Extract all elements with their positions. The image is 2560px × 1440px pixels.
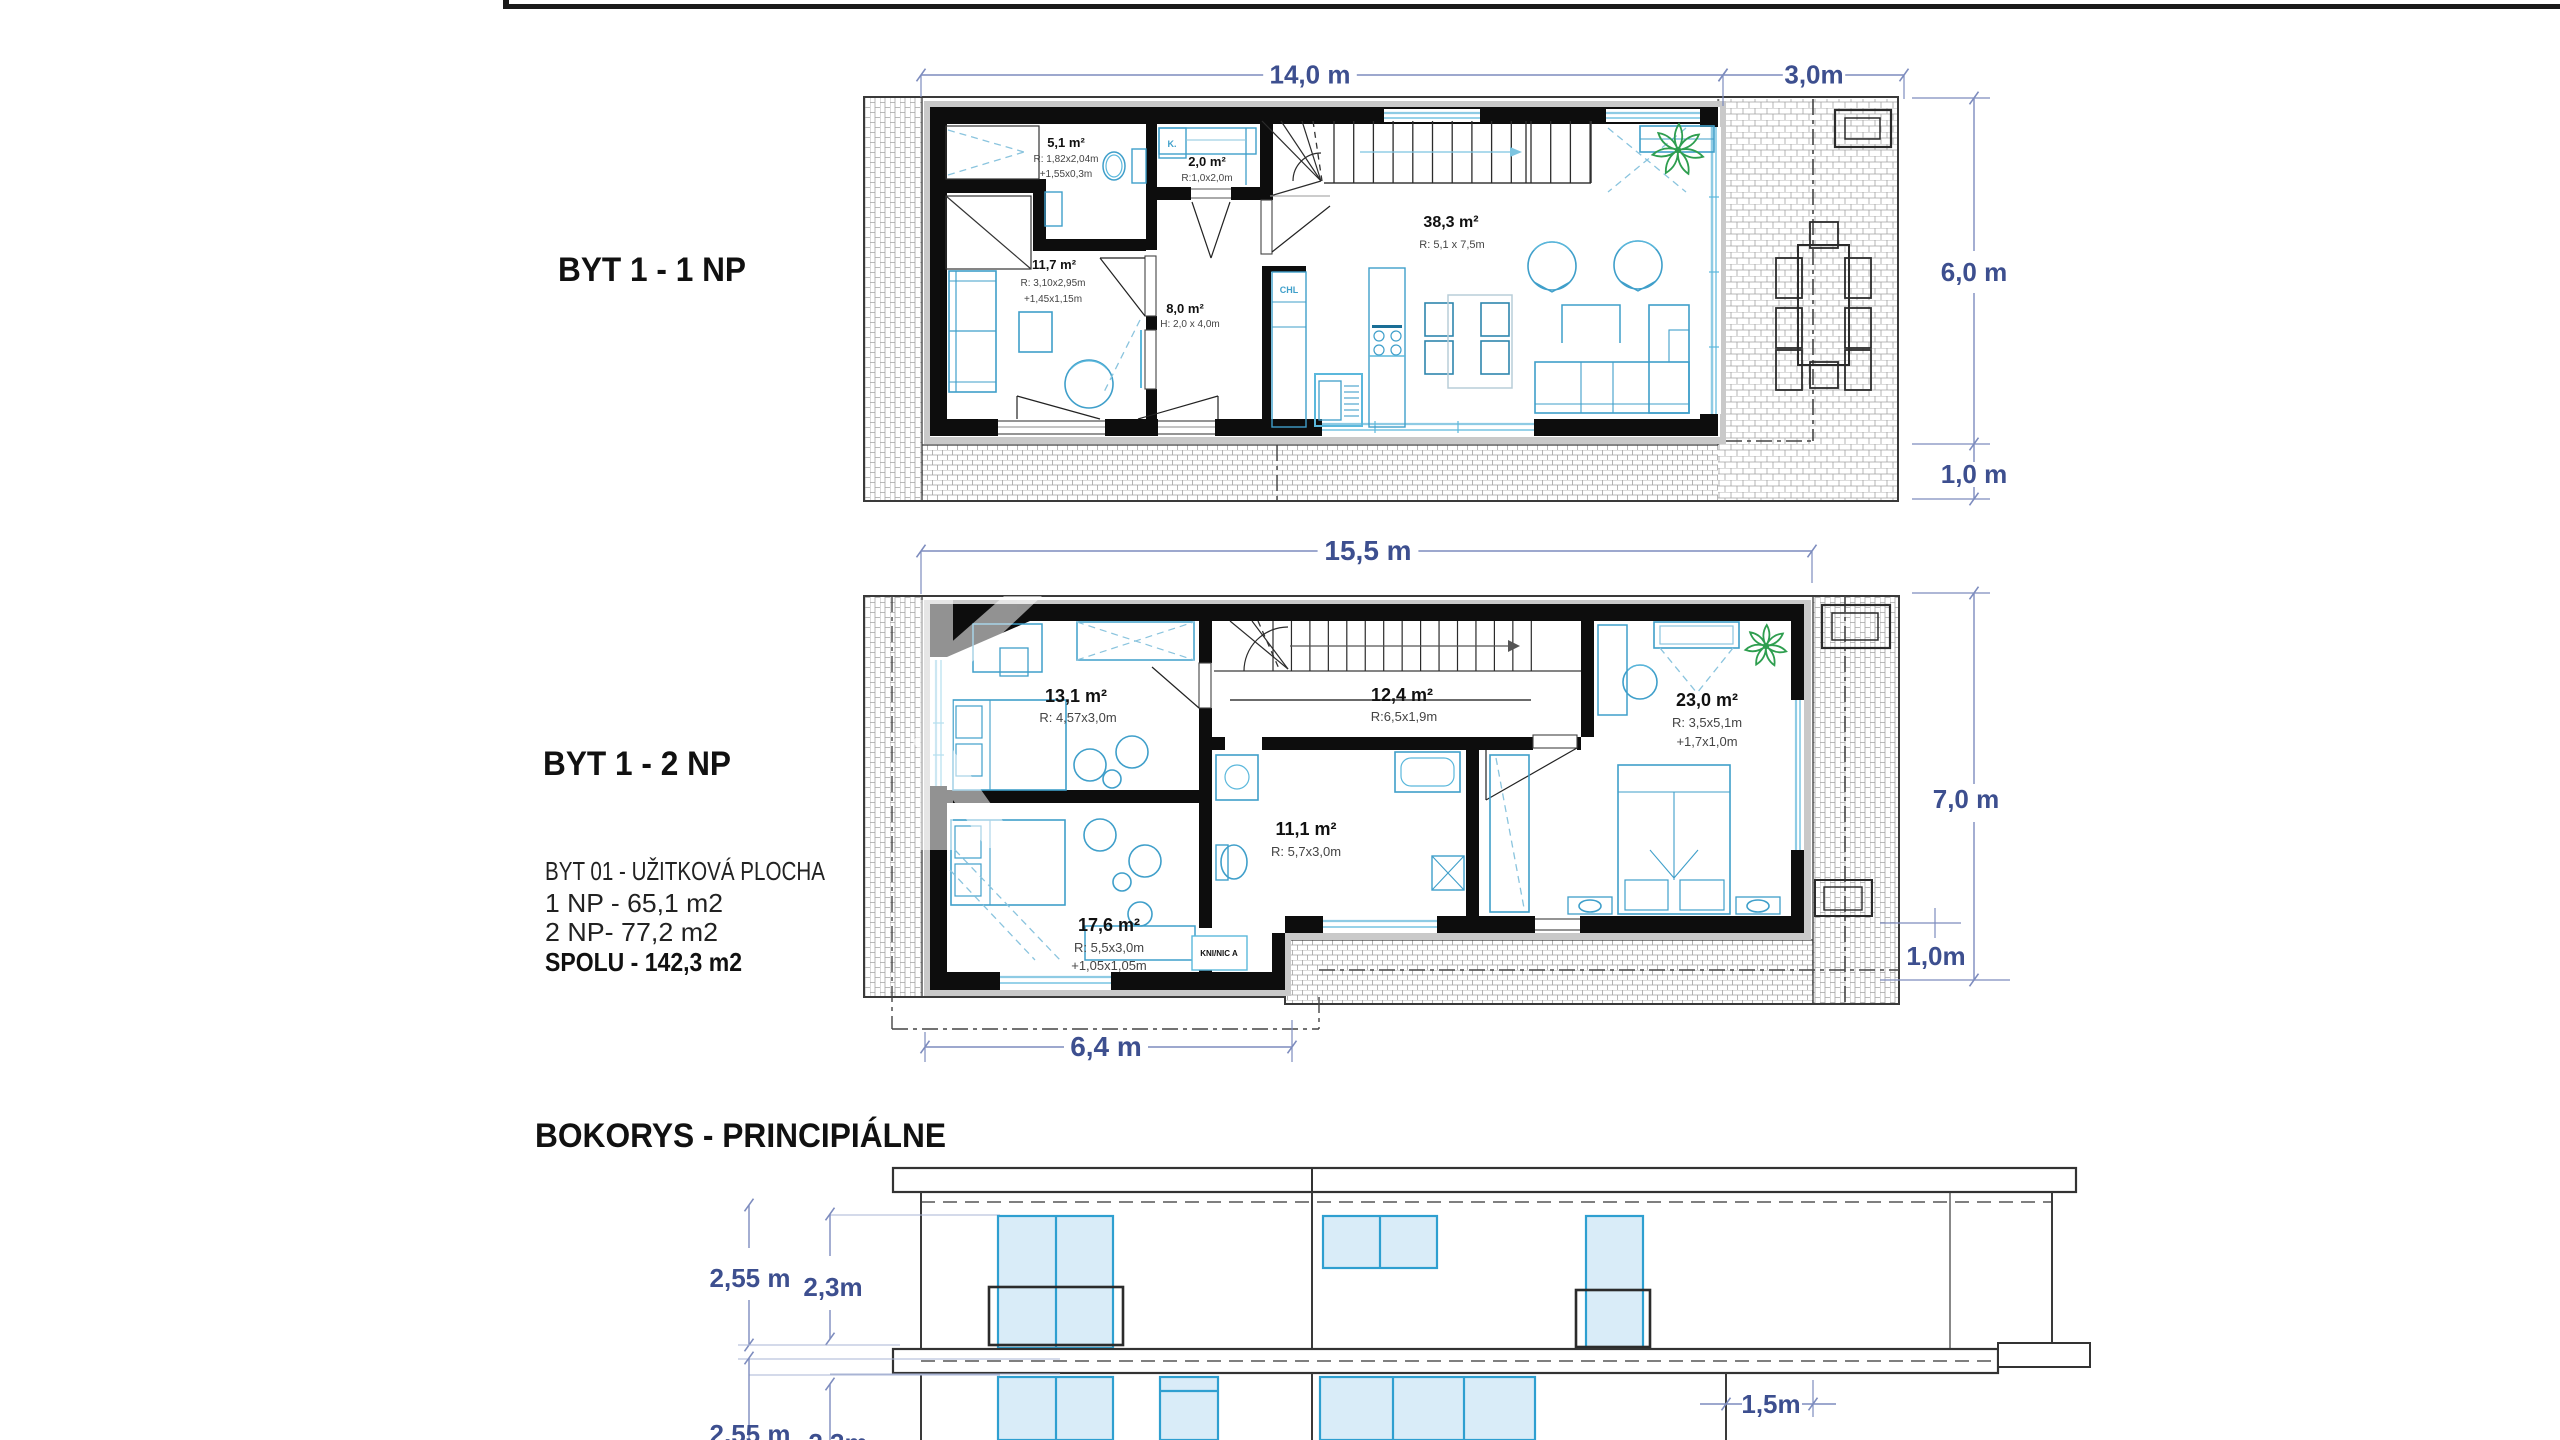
- svg-text:1,5m: 1,5m: [1741, 1389, 1800, 1419]
- svg-text:13,1 m²: 13,1 m²: [1045, 686, 1107, 706]
- svg-text:CHL: CHL: [1280, 285, 1299, 295]
- svg-text:7,0 m: 7,0 m: [1933, 784, 2000, 814]
- svg-text:R: 5,1 x 7,5m: R: 5,1 x 7,5m: [1419, 239, 1484, 251]
- svg-text:2,0 m²: 2,0 m²: [1188, 154, 1226, 169]
- svg-text:K.: K.: [1168, 139, 1177, 149]
- svg-text:2,3m: 2,3m: [803, 1272, 862, 1302]
- svg-text:23,0 m²: 23,0 m²: [1676, 690, 1738, 710]
- svg-text:+1,45x1,15m: +1,45x1,15m: [1024, 294, 1082, 305]
- svg-text:15,5 m: 15,5 m: [1324, 535, 1411, 566]
- svg-text:12,4 m²: 12,4 m²: [1371, 685, 1433, 705]
- svg-text:KNI/NIC A: KNI/NIC A: [1200, 949, 1238, 958]
- svg-text:R: 3,5x5,1m: R: 3,5x5,1m: [1672, 715, 1742, 730]
- svg-text:R: 5,7x3,0m: R: 5,7x3,0m: [1271, 844, 1341, 859]
- svg-text:8,0 m²: 8,0 m²: [1166, 301, 1204, 316]
- svg-text:17,6 m²: 17,6 m²: [1078, 915, 1140, 935]
- svg-text:1 NP - 65,1 m2: 1 NP - 65,1 m2: [545, 888, 723, 918]
- svg-text:BYT 1 - 2 NP: BYT 1 - 2 NP: [543, 745, 731, 783]
- svg-text:2,55 m: 2,55 m: [710, 1263, 791, 1293]
- svg-text:BYT 1 - 1 NP: BYT 1 - 1 NP: [558, 251, 746, 289]
- svg-text:11,7 m²: 11,7 m²: [1032, 257, 1077, 272]
- svg-text:3,0m: 3,0m: [1784, 60, 1843, 90]
- svg-text:2,55 m: 2,55 m: [710, 1419, 791, 1440]
- svg-text:6,0 m: 6,0 m: [1941, 257, 2008, 287]
- svg-text:2,3m: 2,3m: [808, 1428, 867, 1440]
- svg-text:38,3 m²: 38,3 m²: [1423, 214, 1478, 231]
- svg-text:BYT 01 - UŽITKOVÁ PLOCHA: BYT 01 - UŽITKOVÁ PLOCHA: [545, 856, 826, 886]
- svg-text:+1,55x0,3m: +1,55x0,3m: [1040, 169, 1093, 180]
- svg-text:6,4 m: 6,4 m: [1070, 1031, 1142, 1062]
- svg-text:R:1,0x2,0m: R:1,0x2,0m: [1181, 173, 1232, 184]
- svg-text:R: 5,5x3,0m: R: 5,5x3,0m: [1074, 940, 1144, 955]
- svg-text:1,0 m: 1,0 m: [1941, 459, 2008, 489]
- svg-text:+1,05x1,05m: +1,05x1,05m: [1071, 958, 1147, 973]
- svg-text:R: 3,10x2,95m: R: 3,10x2,95m: [1020, 278, 1085, 289]
- svg-text:5,1 m²: 5,1 m²: [1047, 135, 1085, 150]
- svg-text:R: 4,57x3,0m: R: 4,57x3,0m: [1039, 710, 1116, 725]
- svg-text:2 NP- 77,2 m2: 2 NP- 77,2 m2: [545, 917, 718, 947]
- svg-text:SPOLU - 142,3 m2: SPOLU - 142,3 m2: [545, 947, 742, 977]
- svg-text:+1,7x1,0m: +1,7x1,0m: [1676, 734, 1737, 749]
- svg-text:R:6,5x1,9m: R:6,5x1,9m: [1371, 709, 1437, 724]
- svg-text:1,0m: 1,0m: [1906, 941, 1965, 971]
- svg-text:14,0 m: 14,0 m: [1270, 60, 1351, 90]
- svg-text:R: 1,82x2,04m: R: 1,82x2,04m: [1033, 154, 1098, 165]
- svg-text:11,1 m²: 11,1 m²: [1275, 819, 1336, 839]
- svg-text:BOKORYS - PRINCIPIÁLNE: BOKORYS - PRINCIPIÁLNE: [535, 1117, 946, 1155]
- svg-text:H: 2,0 x 4,0m: H: 2,0 x 4,0m: [1160, 319, 1219, 330]
